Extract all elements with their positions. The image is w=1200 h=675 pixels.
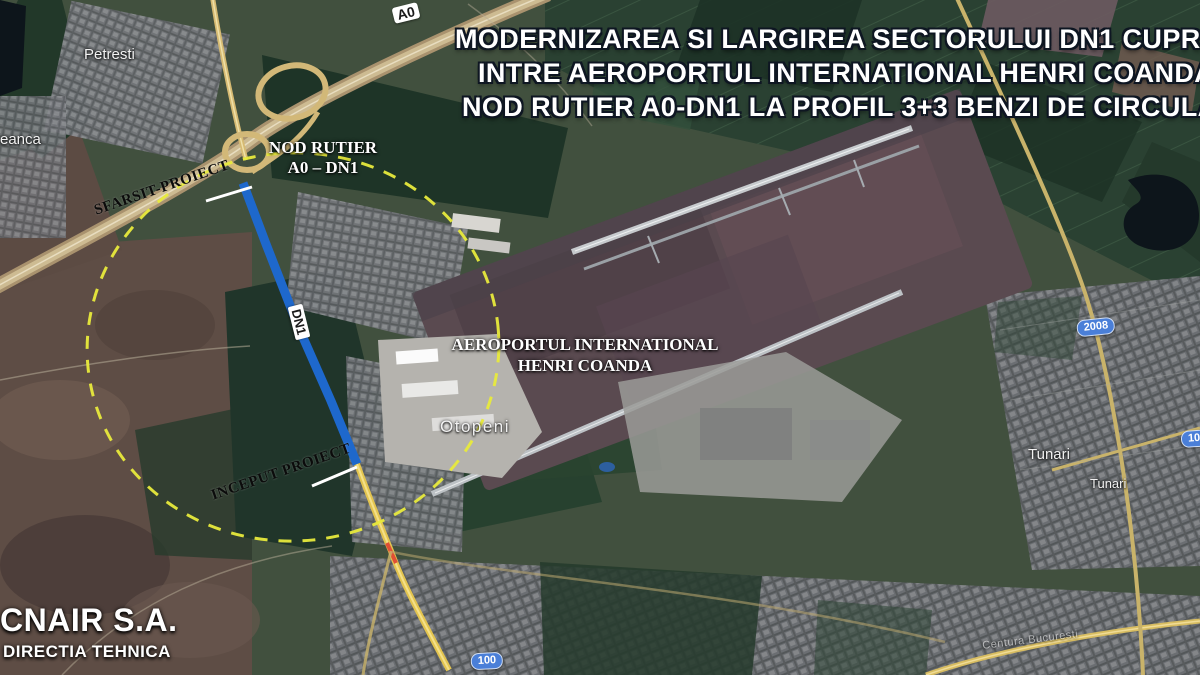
place-label-eanca: eanca — [0, 131, 41, 148]
lake-northwest — [0, 0, 26, 96]
airport-label-line2: HENRI COANDA — [450, 355, 720, 376]
interchange-label-line2: A0 – DN1 — [268, 158, 378, 178]
road-shield-100-east: 100 — [1180, 429, 1200, 448]
pond — [599, 462, 615, 472]
airport-label: AEROPORTUL INTERNATIONAL HENRI COANDA — [450, 334, 720, 376]
airport-label-line1: AEROPORTUL INTERNATIONAL — [450, 334, 720, 355]
interchange-label: NOD RUTIER A0 – DN1 — [268, 138, 378, 178]
place-label-petresti: Petresti — [84, 46, 135, 63]
place-label-tunari-upper: Tunari — [1028, 446, 1070, 463]
place-label-tunari-lower: Tunari — [1090, 476, 1126, 491]
interchange-label-line1: NOD RUTIER — [268, 138, 378, 158]
footer-organization: CNAIR S.A. — [0, 602, 177, 639]
footer-department: DIRECTIA TEHNICA — [3, 642, 171, 662]
project-map-poster: MODERNIZAREA SI LARGIREA SECTORULUI DN1 … — [0, 0, 1200, 675]
place-label-otopeni: Otopeni — [440, 417, 510, 437]
road-shield-100-south: 100 — [470, 652, 503, 671]
